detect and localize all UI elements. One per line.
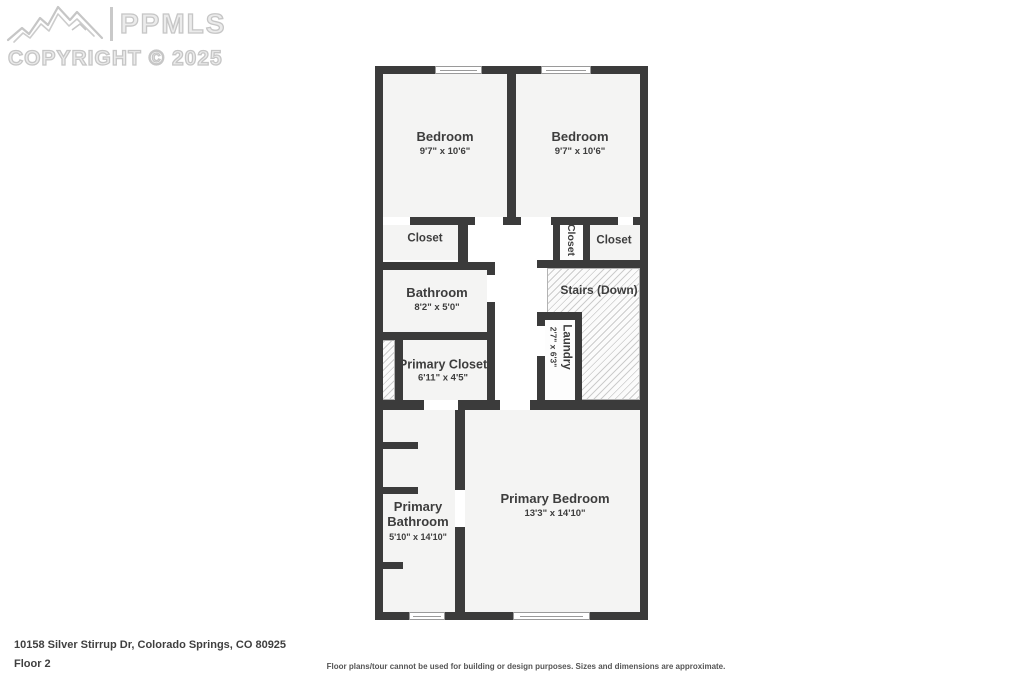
- wall-segment: [458, 400, 500, 410]
- wall-segment: [383, 562, 403, 569]
- copyright-text: COPYRIGHT © 2025: [8, 48, 226, 69]
- room-label-primary-bathroom: Primary Bathroom 5'10" x 14'10": [384, 500, 452, 542]
- watermark-logo-row: PPMLS: [6, 2, 226, 46]
- wall-segment: [410, 217, 475, 225]
- room-name: Closet: [407, 232, 442, 245]
- room-label-bathroom: Bathroom 8'2" x 5'0": [406, 286, 467, 314]
- wall-segment: [507, 74, 516, 217]
- room-dims: 6'11" x 4'5": [399, 374, 487, 385]
- wall-segment: [375, 400, 424, 410]
- window: [541, 66, 591, 74]
- room-name: Bedroom: [416, 130, 473, 145]
- room-name: Primary Closet: [399, 357, 487, 371]
- wall-segment: [487, 270, 495, 275]
- room-dims: 2'7" x 6'3": [548, 324, 558, 369]
- wall-segment: [455, 410, 465, 490]
- wall-segment: [503, 217, 521, 225]
- room-name: Closet: [565, 224, 577, 256]
- room-label-primary-closet: Primary Closet 6'11" x 4'5": [399, 357, 487, 384]
- room-name: Stairs (Down): [560, 284, 637, 298]
- room-name: Laundry: [559, 324, 572, 369]
- room-dims: 8'2" x 5'0": [406, 303, 467, 314]
- disclaimer-text: Floor plans/tour cannot be used for buil…: [0, 662, 1024, 671]
- wall-segment: [575, 312, 582, 400]
- wall-segment: [640, 66, 648, 620]
- wall-segment: [537, 356, 545, 400]
- room-label-closet-right: Closet: [596, 234, 631, 247]
- window: [409, 612, 445, 620]
- brand-text: PPMLS: [120, 10, 226, 38]
- property-address: 10158 Silver Stirrup Dr, Colorado Spring…: [14, 639, 286, 651]
- room-name: Closet: [596, 234, 631, 247]
- room-label-primary-bedroom: Primary Bedroom 13'3" x 14'10": [500, 492, 609, 520]
- room-label-laundry: Laundry 2'7" x 6'3": [548, 324, 573, 369]
- room-label-closet-left: Closet: [407, 232, 442, 245]
- room-dims: 9'7" x 10'6": [416, 147, 473, 158]
- room-label-bedroom-1: Bedroom 9'7" x 10'6": [416, 130, 473, 158]
- window: [513, 612, 590, 620]
- room-name: Primary Bathroom: [384, 500, 452, 530]
- logo-divider: [110, 7, 113, 41]
- room-dims: 9'7" x 10'6": [551, 147, 608, 158]
- room-label-bedroom-2: Bedroom 9'7" x 10'6": [551, 130, 608, 158]
- wall-segment: [530, 400, 648, 410]
- wall-segment: [537, 260, 640, 268]
- room-name: Primary Bedroom: [500, 492, 609, 507]
- room-label-stairs: Stairs (Down): [560, 284, 637, 298]
- watermark: PPMLS COPYRIGHT © 2025: [6, 2, 226, 69]
- room-label-closet-middle: Closet: [565, 224, 577, 256]
- wall-segment: [375, 262, 495, 270]
- floor-plan: Bedroom 9'7" x 10'6" Bedroom 9'7" x 10'6…: [375, 66, 648, 620]
- room-name: Bathroom: [406, 286, 467, 301]
- mountain-logo-icon: [6, 2, 106, 46]
- wall-segment: [375, 66, 383, 620]
- wall-segment: [383, 442, 418, 449]
- wall-segment: [633, 217, 640, 225]
- wall-segment: [537, 312, 545, 326]
- wall-segment: [375, 332, 495, 340]
- floor-plan-page: { "watermark": { "brand": "PPMLS", "copy…: [0, 0, 1024, 682]
- room-dims: 5'10" x 14'10": [384, 532, 452, 542]
- wall-segment: [455, 527, 465, 612]
- window: [435, 66, 482, 74]
- room-name: Bedroom: [551, 130, 608, 145]
- room-dims: 13'3" x 14'10": [500, 509, 609, 520]
- wall-segment: [375, 66, 648, 74]
- wall-segment: [458, 225, 468, 262]
- wall-segment: [383, 487, 418, 494]
